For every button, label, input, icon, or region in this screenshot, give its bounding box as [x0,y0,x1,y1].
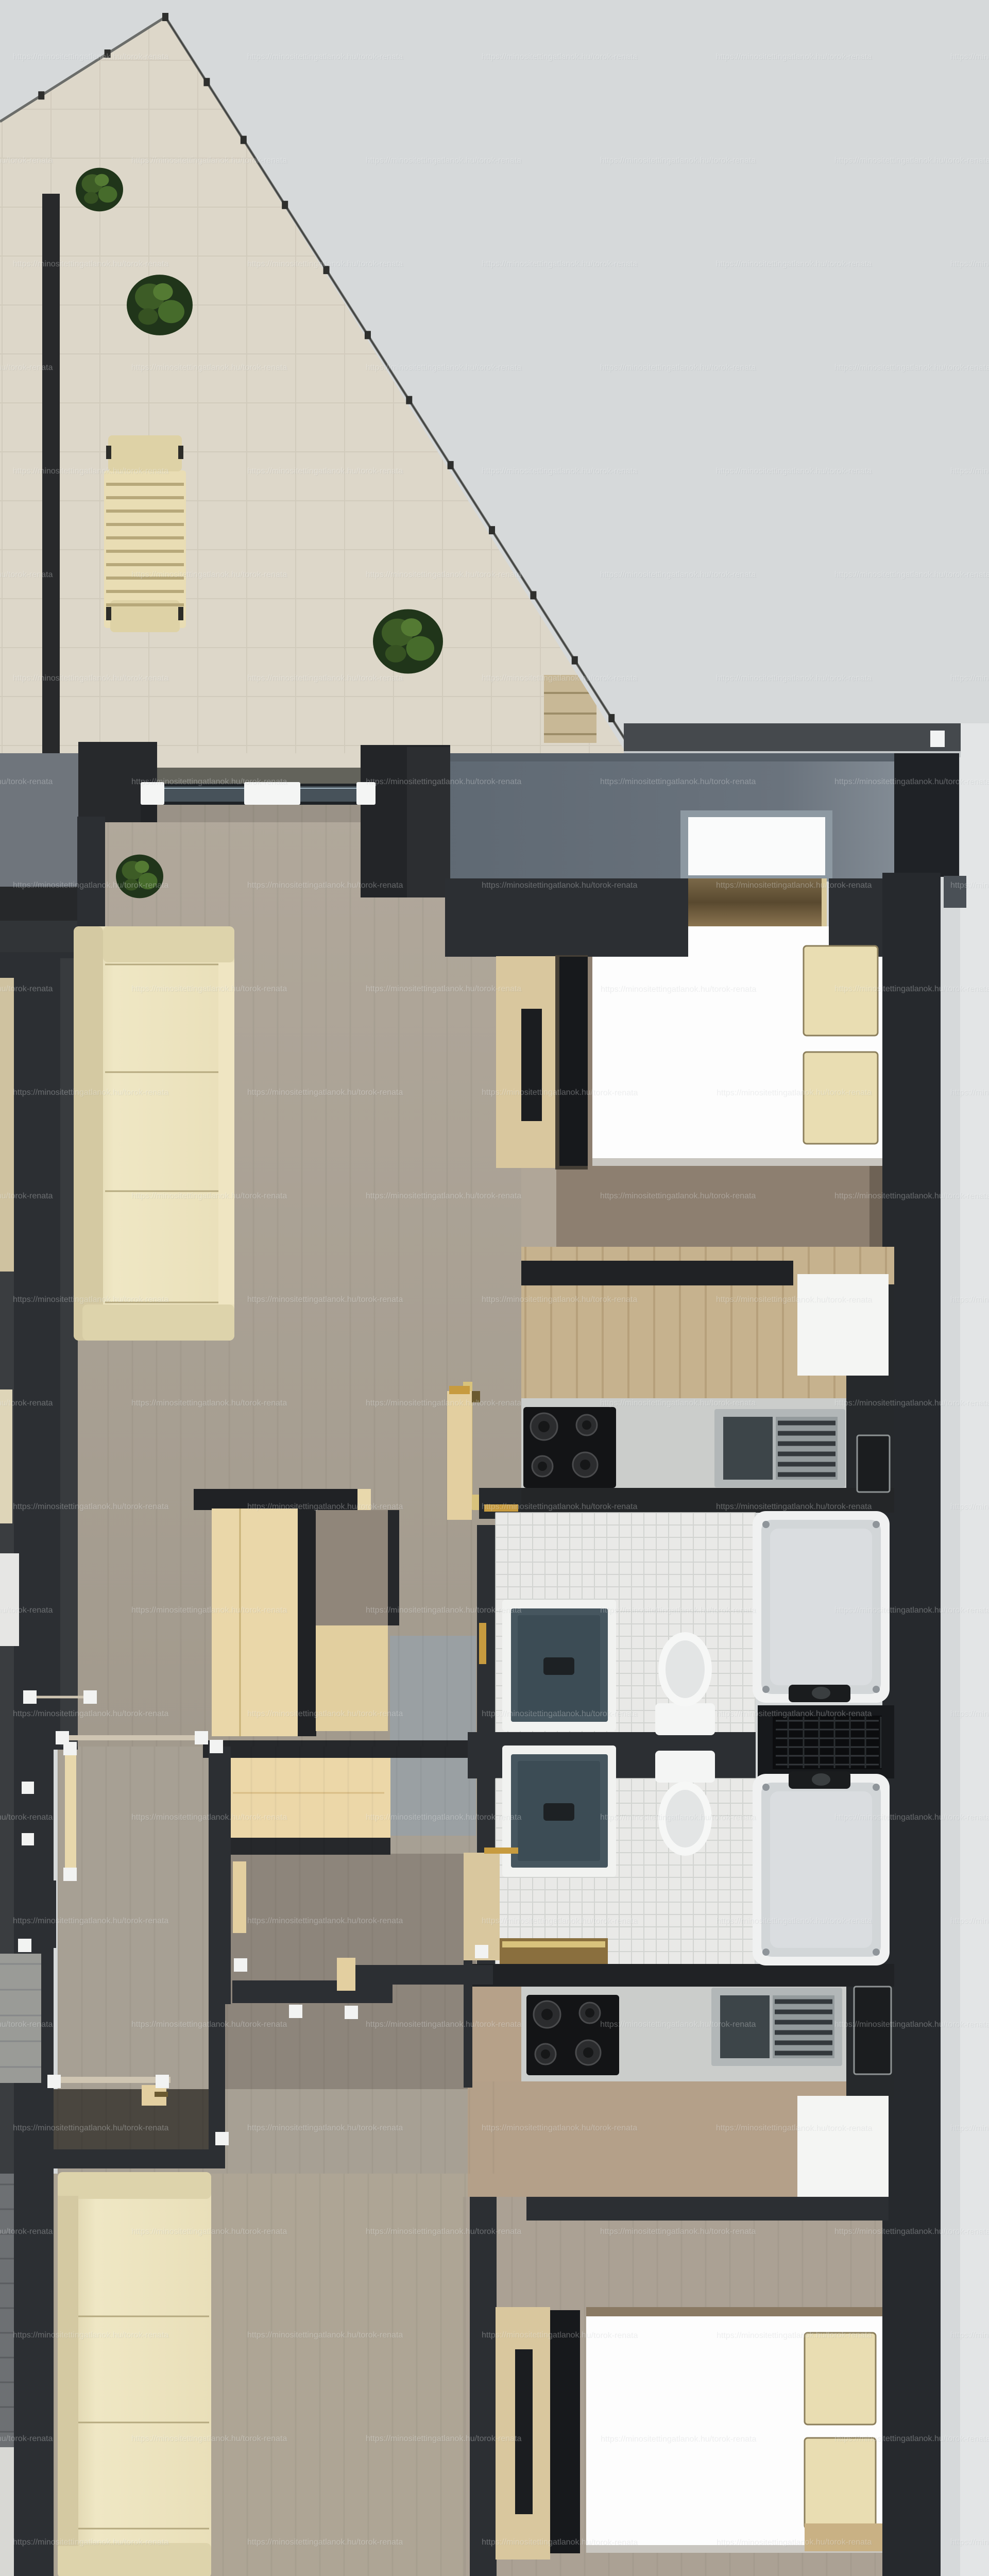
svg-text:https://minositettingatlanok.h: https://minositettingatlanok.hu/torok-re… [716,2538,872,2547]
svg-text:https://minositettingatlanok.h: https://minositettingatlanok.hu/torok-re… [131,363,287,372]
svg-text:https://minositettingatlanok.h: https://minositettingatlanok.hu/torok-re… [131,2227,287,2236]
svg-text:https://minositettingatlanok.h: https://minositettingatlanok.hu/torok-re… [482,53,637,61]
svg-text:https://minositettingatlanok.h: https://minositettingatlanok.hu/torok-re… [600,2227,756,2236]
svg-text:https://minositettingatlanok.h: https://minositettingatlanok.hu/torok-re… [482,2538,637,2547]
svg-text:https://minositettingatlanok.h: https://minositettingatlanok.hu/torok-re… [13,2331,168,2340]
svg-text:https://minositettingatlanok.h: https://minositettingatlanok.hu/torok-re… [0,156,53,165]
svg-text:https://minositettingatlanok.h: https://minositettingatlanok.hu/torok-re… [13,1295,168,1304]
svg-text:https://minositettingatlanok.h: https://minositettingatlanok.hu/torok-re… [13,2538,168,2547]
svg-text:https://minositettingatlanok.h: https://minositettingatlanok.hu/torok-re… [13,467,168,476]
svg-text:https://minositettingatlanok.h: https://minositettingatlanok.hu/torok-re… [247,674,403,683]
svg-text:https://minositettingatlanok.h: https://minositettingatlanok.hu/torok-re… [0,985,53,993]
svg-text:https://minositettingatlanok.h: https://minositettingatlanok.hu/torok-re… [247,881,403,890]
svg-text:https://minositettingatlanok.h: https://minositettingatlanok.hu/torok-re… [366,1192,521,1200]
svg-text:https://minositettingatlanok.h: https://minositettingatlanok.hu/torok-re… [366,570,521,579]
svg-text:https://minositettingatlanok.h: https://minositettingatlanok.hu/torok-re… [0,1192,53,1200]
svg-text:https://minositettingatlanok.h: https://minositettingatlanok.hu/torok-re… [366,2020,521,2029]
svg-text:https://minositettingatlanok.h: https://minositettingatlanok.hu/torok-re… [834,777,989,786]
svg-text:https://minositettingatlanok.h: https://minositettingatlanok.hu/torok-re… [13,1917,168,1925]
svg-text:https://minositettingatlanok.h: https://minositettingatlanok.hu/torok-re… [716,2124,872,2132]
svg-text:https://minositettingatlanok.h: https://minositettingatlanok.hu/torok-re… [0,1606,53,1615]
svg-text:https://minositettingatlanok.h: https://minositettingatlanok.hu/torok-re… [131,985,287,993]
svg-text:https://minositettingatlanok.h: https://minositettingatlanok.hu/torok-re… [13,881,168,890]
svg-text:https://minositettingatlanok.h: https://minositettingatlanok.hu/torok-re… [600,777,756,786]
svg-text:https://minositettingatlanok.h: https://minositettingatlanok.hu/torok-re… [950,1502,989,1511]
svg-text:https://minositettingatlanok.h: https://minositettingatlanok.hu/torok-re… [482,1709,637,1718]
svg-text:https://minositettingatlanok.h: https://minositettingatlanok.hu/torok-re… [482,2331,637,2340]
svg-text:https://minositettingatlanok.h: https://minositettingatlanok.hu/torok-re… [131,570,287,579]
svg-text:https://minositettingatlanok.h: https://minositettingatlanok.hu/torok-re… [482,1502,637,1511]
svg-text:https://minositettingatlanok.h: https://minositettingatlanok.hu/torok-re… [247,1917,403,1925]
svg-text:https://minositettingatlanok.h: https://minositettingatlanok.hu/torok-re… [131,777,287,786]
svg-text:https://minositettingatlanok.h: https://minositettingatlanok.hu/torok-re… [834,156,989,165]
svg-text:https://minositettingatlanok.h: https://minositettingatlanok.hu/torok-re… [600,1399,756,1408]
svg-text:https://minositettingatlanok.h: https://minositettingatlanok.hu/torok-re… [366,1399,521,1408]
svg-text:https://minositettingatlanok.h: https://minositettingatlanok.hu/torok-re… [13,1502,168,1511]
svg-text:https://minositettingatlanok.h: https://minositettingatlanok.hu/torok-re… [247,2331,403,2340]
svg-text:https://minositettingatlanok.h: https://minositettingatlanok.hu/torok-re… [13,53,168,61]
svg-text:https://minositettingatlanok.h: https://minositettingatlanok.hu/torok-re… [13,260,168,268]
svg-text:https://minositettingatlanok.h: https://minositettingatlanok.hu/torok-re… [0,777,53,786]
svg-text:https://minositettingatlanok.h: https://minositettingatlanok.hu/torok-re… [600,1192,756,1200]
svg-text:https://minositettingatlanok.h: https://minositettingatlanok.hu/torok-re… [834,1813,989,1822]
svg-text:https://minositettingatlanok.h: https://minositettingatlanok.hu/torok-re… [482,260,637,268]
svg-text:https://minositettingatlanok.h: https://minositettingatlanok.hu/torok-re… [716,1088,872,1097]
svg-text:https://minositettingatlanok.h: https://minositettingatlanok.hu/torok-re… [716,674,872,683]
svg-text:https://minositettingatlanok.h: https://minositettingatlanok.hu/torok-re… [131,2020,287,2029]
svg-text:https://minositettingatlanok.h: https://minositettingatlanok.hu/torok-re… [13,2124,168,2132]
svg-text:https://minositettingatlanok.h: https://minositettingatlanok.hu/torok-re… [0,363,53,372]
svg-text:https://minositettingatlanok.h: https://minositettingatlanok.hu/torok-re… [716,1709,872,1718]
svg-text:https://minositettingatlanok.h: https://minositettingatlanok.hu/torok-re… [834,1192,989,1200]
svg-text:https://minositettingatlanok.h: https://minositettingatlanok.hu/torok-re… [482,881,637,890]
svg-text:https://minositettingatlanok.h: https://minositettingatlanok.hu/torok-re… [950,2538,989,2547]
svg-text:https://minositettingatlanok.h: https://minositettingatlanok.hu/torok-re… [950,260,989,268]
svg-text:https://minositettingatlanok.h: https://minositettingatlanok.hu/torok-re… [13,674,168,683]
svg-text:https://minositettingatlanok.h: https://minositettingatlanok.hu/torok-re… [247,53,403,61]
svg-text:https://minositettingatlanok.h: https://minositettingatlanok.hu/torok-re… [716,1502,872,1511]
svg-text:https://minositettingatlanok.h: https://minositettingatlanok.hu/torok-re… [247,1295,403,1304]
svg-text:https://minositettingatlanok.h: https://minositettingatlanok.hu/torok-re… [950,674,989,683]
svg-text:https://minositettingatlanok.h: https://minositettingatlanok.hu/torok-re… [482,1088,637,1097]
svg-text:https://minositettingatlanok.h: https://minositettingatlanok.hu/torok-re… [600,363,756,372]
svg-text:https://minositettingatlanok.h: https://minositettingatlanok.hu/torok-re… [716,467,872,476]
svg-text:https://minositettingatlanok.h: https://minositettingatlanok.hu/torok-re… [716,53,872,61]
svg-text:https://minositettingatlanok.h: https://minositettingatlanok.hu/torok-re… [131,1813,287,1822]
svg-text:https://minositettingatlanok.h: https://minositettingatlanok.hu/torok-re… [482,674,637,683]
svg-text:https://minositettingatlanok.h: https://minositettingatlanok.hu/torok-re… [600,156,756,165]
svg-text:https://minositettingatlanok.h: https://minositettingatlanok.hu/torok-re… [716,260,872,268]
svg-text:https://minositettingatlanok.h: https://minositettingatlanok.hu/torok-re… [834,2434,989,2443]
svg-text:https://minositettingatlanok.h: https://minositettingatlanok.hu/torok-re… [13,1709,168,1718]
svg-text:https://minositettingatlanok.h: https://minositettingatlanok.hu/torok-re… [247,1088,403,1097]
svg-text:https://minositettingatlanok.h: https://minositettingatlanok.hu/torok-re… [950,2331,989,2340]
svg-text:https://minositettingatlanok.h: https://minositettingatlanok.hu/torok-re… [366,2227,521,2236]
svg-text:https://minositettingatlanok.h: https://minositettingatlanok.hu/torok-re… [0,570,53,579]
svg-text:https://minositettingatlanok.h: https://minositettingatlanok.hu/torok-re… [0,1399,53,1408]
svg-text:https://minositettingatlanok.h: https://minositettingatlanok.hu/torok-re… [834,363,989,372]
svg-text:https://minositettingatlanok.h: https://minositettingatlanok.hu/torok-re… [366,1813,521,1822]
svg-text:https://minositettingatlanok.h: https://minositettingatlanok.hu/torok-re… [247,260,403,268]
svg-text:https://minositettingatlanok.h: https://minositettingatlanok.hu/torok-re… [482,2124,637,2132]
svg-text:https://minositettingatlanok.h: https://minositettingatlanok.hu/torok-re… [0,2434,53,2443]
svg-text:https://minositettingatlanok.h: https://minositettingatlanok.hu/torok-re… [600,2434,756,2443]
svg-text:https://minositettingatlanok.h: https://minositettingatlanok.hu/torok-re… [716,881,872,890]
svg-text:https://minositettingatlanok.h: https://minositettingatlanok.hu/torok-re… [950,2124,989,2132]
svg-text:https://minositettingatlanok.h: https://minositettingatlanok.hu/torok-re… [716,1295,872,1304]
svg-text:https://minositettingatlanok.h: https://minositettingatlanok.hu/torok-re… [247,467,403,476]
svg-text:https://minositettingatlanok.h: https://minositettingatlanok.hu/torok-re… [600,985,756,993]
svg-text:https://minositettingatlanok.h: https://minositettingatlanok.hu/torok-re… [600,1606,756,1615]
svg-text:https://minositettingatlanok.h: https://minositettingatlanok.hu/torok-re… [482,467,637,476]
svg-text:https://minositettingatlanok.h: https://minositettingatlanok.hu/torok-re… [131,2434,287,2443]
svg-text:https://minositettingatlanok.h: https://minositettingatlanok.hu/torok-re… [366,2434,521,2443]
svg-text:https://minositettingatlanok.h: https://minositettingatlanok.hu/torok-re… [0,2020,53,2029]
svg-text:https://minositettingatlanok.h: https://minositettingatlanok.hu/torok-re… [0,2227,53,2236]
svg-text:https://minositettingatlanok.h: https://minositettingatlanok.hu/torok-re… [13,1088,168,1097]
svg-text:https://minositettingatlanok.h: https://minositettingatlanok.hu/torok-re… [600,570,756,579]
svg-text:https://minositettingatlanok.h: https://minositettingatlanok.hu/torok-re… [834,570,989,579]
svg-text:https://minositettingatlanok.h: https://minositettingatlanok.hu/torok-re… [131,156,287,165]
svg-text:https://minositettingatlanok.h: https://minositettingatlanok.hu/torok-re… [950,467,989,476]
svg-text:https://minositettingatlanok.h: https://minositettingatlanok.hu/torok-re… [482,1295,637,1304]
svg-text:https://minositettingatlanok.h: https://minositettingatlanok.hu/torok-re… [716,2331,872,2340]
svg-text:https://minositettingatlanok.h: https://minositettingatlanok.hu/torok-re… [600,1813,756,1822]
svg-text:https://minositettingatlanok.h: https://minositettingatlanok.hu/torok-re… [366,985,521,993]
svg-text:https://minositettingatlanok.h: https://minositettingatlanok.hu/torok-re… [950,1917,989,1925]
svg-text:https://minositettingatlanok.h: https://minositettingatlanok.hu/torok-re… [950,1088,989,1097]
svg-text:https://minositettingatlanok.h: https://minositettingatlanok.hu/torok-re… [834,2020,989,2029]
svg-text:https://minositettingatlanok.h: https://minositettingatlanok.hu/torok-re… [366,1606,521,1615]
svg-text:https://minositettingatlanok.h: https://minositettingatlanok.hu/torok-re… [950,881,989,890]
svg-text:https://minositettingatlanok.h: https://minositettingatlanok.hu/torok-re… [482,1917,637,1925]
svg-text:https://minositettingatlanok.h: https://minositettingatlanok.hu/torok-re… [0,1813,53,1822]
svg-text:https://minositettingatlanok.h: https://minositettingatlanok.hu/torok-re… [950,1709,989,1718]
svg-text:https://minositettingatlanok.h: https://minositettingatlanok.hu/torok-re… [834,1606,989,1615]
svg-text:https://minositettingatlanok.h: https://minositettingatlanok.hu/torok-re… [366,777,521,786]
svg-text:https://minositettingatlanok.h: https://minositettingatlanok.hu/torok-re… [131,1399,287,1408]
svg-text:https://minositettingatlanok.h: https://minositettingatlanok.hu/torok-re… [834,1399,989,1408]
svg-text:https://minositettingatlanok.h: https://minositettingatlanok.hu/torok-re… [834,985,989,993]
svg-text:https://minositettingatlanok.h: https://minositettingatlanok.hu/torok-re… [131,1606,287,1615]
svg-text:https://minositettingatlanok.h: https://minositettingatlanok.hu/torok-re… [366,363,521,372]
svg-text:https://minositettingatlanok.h: https://minositettingatlanok.hu/torok-re… [366,156,521,165]
svg-text:https://minositettingatlanok.h: https://minositettingatlanok.hu/torok-re… [247,1502,403,1511]
svg-text:https://minositettingatlanok.h: https://minositettingatlanok.hu/torok-re… [716,1917,872,1925]
svg-text:https://minositettingatlanok.h: https://minositettingatlanok.hu/torok-re… [950,53,989,61]
svg-text:https://minositettingatlanok.h: https://minositettingatlanok.hu/torok-re… [247,2538,403,2547]
svg-text:https://minositettingatlanok.h: https://minositettingatlanok.hu/torok-re… [950,1295,989,1304]
svg-text:https://minositettingatlanok.h: https://minositettingatlanok.hu/torok-re… [247,1709,403,1718]
svg-text:https://minositettingatlanok.h: https://minositettingatlanok.hu/torok-re… [247,2124,403,2132]
svg-text:https://minositettingatlanok.h: https://minositettingatlanok.hu/torok-re… [834,2227,989,2236]
svg-text:https://minositettingatlanok.h: https://minositettingatlanok.hu/torok-re… [600,2020,756,2029]
svg-text:https://minositettingatlanok.h: https://minositettingatlanok.hu/torok-re… [131,1192,287,1200]
